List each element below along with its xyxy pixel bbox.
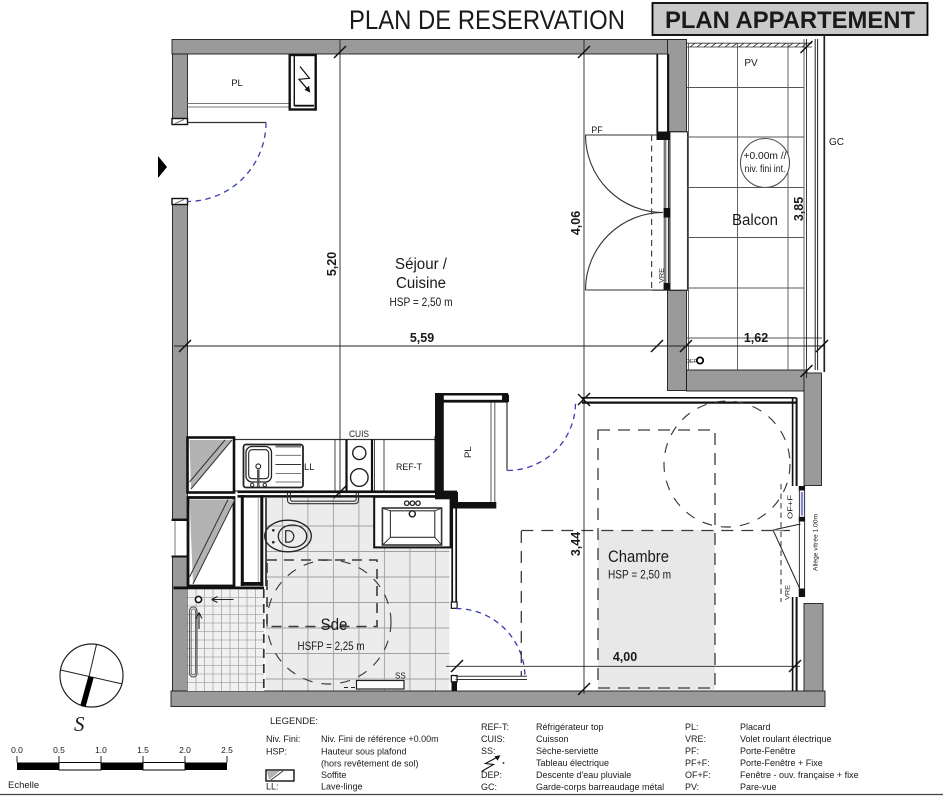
svg-text:Lave-linge: Lave-linge: [321, 782, 363, 792]
svg-text:PF: PF: [591, 125, 603, 135]
svg-text:0.0: 0.0: [11, 745, 23, 755]
svg-text:+0.00m //: +0.00m //: [744, 151, 787, 162]
svg-text:Niv. Fini de référence +0.00m: Niv. Fini de référence +0.00m: [321, 734, 439, 744]
svg-text:PL:: PL:: [685, 722, 699, 732]
svg-text:HSFP = 2,25 m: HSFP = 2,25 m: [298, 639, 365, 653]
svg-text:Pare-vue: Pare-vue: [740, 782, 777, 792]
svg-text:Echelle: Echelle: [8, 780, 39, 791]
svg-text:PLAN DE RESERVATION: PLAN DE RESERVATION: [349, 5, 625, 35]
svg-text:Volet roulant électrique: Volet roulant électrique: [740, 734, 832, 744]
svg-text:VRE: VRE: [785, 584, 792, 600]
svg-text:LL:: LL:: [266, 782, 279, 792]
svg-text:PL: PL: [231, 78, 243, 89]
svg-text:PV: PV: [744, 58, 758, 69]
svg-text:1.0: 1.0: [95, 745, 107, 755]
svg-text:CUIS:: CUIS:: [481, 734, 505, 744]
svg-text:1.5: 1.5: [137, 745, 149, 755]
svg-text:3,44: 3,44: [569, 532, 583, 556]
svg-text:REF-T: REF-T: [396, 462, 422, 473]
svg-text:4,00: 4,00: [613, 650, 637, 664]
svg-text:PF+F:: PF+F:: [685, 758, 710, 768]
svg-text:2.0: 2.0: [179, 745, 191, 755]
svg-text:LL: LL: [304, 462, 315, 473]
svg-text:5,20: 5,20: [325, 252, 339, 276]
svg-text:Chambre: Chambre: [608, 548, 669, 566]
svg-text:Réfrigérateur top: Réfrigérateur top: [536, 722, 604, 732]
svg-text:Porte-Fenêtre: Porte-Fenêtre: [740, 746, 796, 756]
svg-text:0.5: 0.5: [53, 745, 65, 755]
svg-text:VRE: VRE: [659, 267, 666, 283]
svg-text:VRE:: VRE:: [685, 734, 706, 744]
svg-text:Sde: Sde: [321, 616, 348, 634]
svg-text:HSP:: HSP:: [266, 747, 287, 757]
svg-text:Descente d'eau pluviale: Descente d'eau pluviale: [536, 770, 631, 780]
svg-text:Placard: Placard: [740, 722, 771, 732]
svg-text:SS:: SS:: [481, 746, 496, 756]
svg-text:DEP:: DEP:: [481, 770, 502, 780]
svg-text:(hors revêtement de sol): (hors revêtement de sol): [321, 759, 419, 769]
svg-text:OF+F:: OF+F:: [685, 770, 711, 780]
svg-text:OF+F: OF+F: [788, 495, 795, 519]
svg-text:GC:: GC:: [481, 782, 497, 792]
svg-text:5,59: 5,59: [410, 331, 434, 345]
svg-text:Cuisson: Cuisson: [536, 734, 569, 744]
svg-text:CUIS: CUIS: [349, 429, 369, 440]
svg-text:S: S: [74, 712, 85, 736]
svg-text:Tableau électrique: Tableau électrique: [536, 758, 609, 768]
svg-text:Séjour /: Séjour /: [395, 256, 448, 273]
svg-text:niv. fini int.: niv. fini int.: [745, 164, 786, 175]
svg-text:SS: SS: [395, 672, 406, 681]
svg-text:Hauteur sous plafond: Hauteur sous plafond: [321, 747, 407, 757]
svg-text:Garde-corps barreaudage métal: Garde-corps barreaudage métal: [536, 782, 664, 792]
svg-text:GC: GC: [829, 137, 844, 148]
svg-text:HSP = 2,50 m: HSP = 2,50 m: [390, 295, 453, 309]
svg-text:DEP: DEP: [686, 359, 698, 365]
svg-text:2.5: 2.5: [221, 745, 233, 755]
svg-text:Balcon: Balcon: [732, 212, 778, 229]
svg-text:REF-T:: REF-T:: [481, 722, 509, 732]
svg-text:Allège vitrée 1.00m: Allège vitrée 1.00m: [813, 514, 820, 571]
svg-text:PF:: PF:: [685, 746, 699, 756]
svg-text:1,62: 1,62: [744, 331, 768, 345]
svg-text:3,85: 3,85: [792, 197, 806, 221]
svg-text:PL: PL: [463, 446, 474, 458]
svg-text:Cuisine: Cuisine: [396, 275, 446, 292]
svg-text:Porte-Fenêtre + Fixe: Porte-Fenêtre + Fixe: [740, 758, 823, 768]
svg-text:LEGENDE:: LEGENDE:: [270, 716, 318, 727]
svg-text:Soffite: Soffite: [321, 770, 346, 780]
svg-text:PV:: PV:: [685, 782, 699, 792]
svg-text:PLAN APPARTEMENT: PLAN APPARTEMENT: [665, 7, 915, 34]
svg-text:HSP = 2,50 m: HSP = 2,50 m: [608, 568, 671, 582]
svg-text:Niv. Fini:: Niv. Fini:: [266, 734, 300, 744]
svg-text:Fenêtre - ouv. française + fix: Fenêtre - ouv. française + fixe: [740, 770, 859, 780]
svg-text:Sèche-serviette: Sèche-serviette: [536, 746, 599, 756]
svg-text:4,06: 4,06: [569, 211, 583, 235]
